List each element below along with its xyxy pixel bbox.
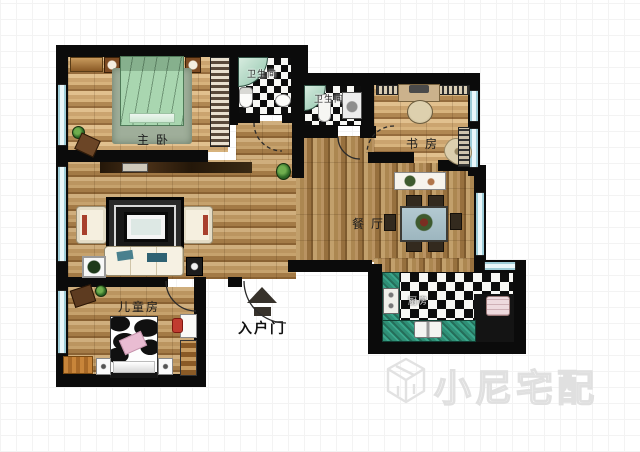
plant-icon [276, 163, 291, 180]
kids-bed [110, 316, 158, 378]
monitor [409, 85, 429, 93]
bookshelf [436, 85, 470, 95]
nightstand [96, 358, 111, 375]
entry-arrow-icon [247, 287, 277, 303]
room-label-kitchen: 厨房 [408, 294, 428, 307]
wall [56, 277, 168, 287]
coffee-table [124, 212, 168, 242]
tv [122, 163, 148, 172]
window [484, 262, 516, 270]
red-chair [172, 318, 183, 333]
throw-blanket [203, 215, 208, 235]
window [470, 90, 478, 122]
wall [56, 150, 208, 162]
watermark-brand-text: 小尼宅配 [434, 358, 598, 412]
planter-box [82, 256, 106, 278]
wardrobe [210, 57, 230, 147]
dining-table [400, 206, 448, 242]
window [58, 166, 66, 262]
fridge [486, 296, 510, 316]
dresser [70, 57, 103, 72]
wall [368, 152, 414, 163]
room-label-entry: 入户门 [238, 318, 286, 338]
armchair [182, 206, 213, 244]
room-label-kids: 儿童房 [118, 298, 160, 315]
tv-console [100, 162, 252, 173]
office-chair [407, 100, 433, 124]
wall [292, 45, 304, 125]
nightstand [158, 358, 173, 375]
wall [368, 264, 382, 352]
sofa-pillow [147, 253, 167, 262]
throw-blanket [82, 215, 87, 235]
wall [228, 277, 242, 287]
window [58, 290, 66, 354]
cube-n-logo-icon [384, 356, 428, 406]
toilet [239, 87, 253, 108]
wood-mat [63, 356, 93, 374]
sink [275, 94, 291, 107]
pillow [119, 331, 147, 355]
blanket [113, 361, 155, 373]
wall [514, 260, 526, 354]
side-cabinet [186, 257, 203, 276]
stove [383, 288, 399, 314]
wall [362, 73, 374, 138]
wall [288, 260, 372, 272]
plant-icon [95, 285, 107, 297]
sofa [104, 246, 184, 276]
kids-shelf [180, 340, 197, 376]
wall [292, 121, 304, 178]
window [58, 84, 66, 146]
dining-chair [450, 213, 462, 230]
washing-machine [342, 92, 362, 119]
shelf [458, 127, 470, 167]
armchair [76, 206, 107, 244]
double-bed [120, 56, 184, 126]
room-label-bathroom-1: 卫生间 [247, 67, 277, 80]
room-label-bathroom-2: 卫生间 [314, 92, 344, 105]
room-label-master-bedroom: 主卧 [137, 131, 175, 148]
wall [296, 73, 480, 85]
sideboard [394, 172, 446, 190]
room-label-study: 书房 [406, 135, 444, 152]
watermark: 小尼宅配 [384, 352, 614, 412]
bed-sheet-fold [129, 113, 175, 123]
floorplan-canvas: 主卧 卫生间 卫生间 书房 餐厅 [0, 0, 640, 452]
room-label-dining: 餐厅 [352, 215, 390, 232]
window [476, 192, 484, 256]
kitchen-sink [414, 321, 442, 338]
sofa-pillow [116, 250, 133, 261]
wall [228, 113, 260, 123]
entry-arrow-stem [254, 305, 271, 316]
